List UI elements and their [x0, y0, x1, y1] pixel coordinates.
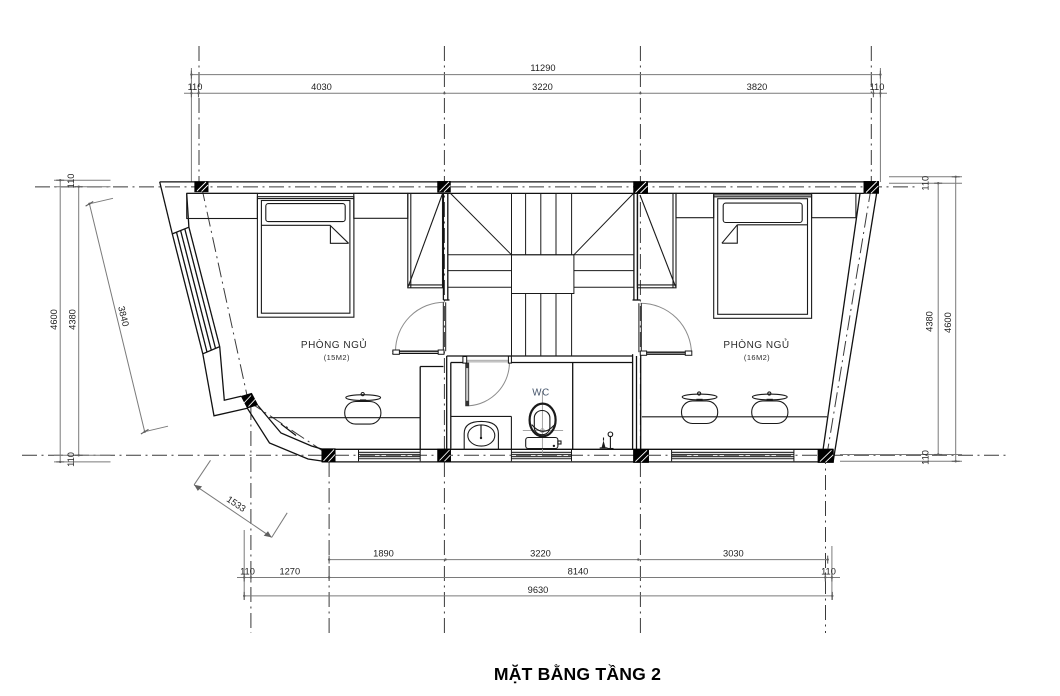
- svg-text:3030: 3030: [723, 549, 744, 559]
- svg-text:110: 110: [870, 82, 885, 92]
- svg-text:110: 110: [66, 174, 76, 189]
- svg-text:11290: 11290: [530, 63, 555, 73]
- svg-text:8140: 8140: [568, 567, 589, 577]
- svg-text:110: 110: [921, 450, 931, 465]
- svg-text:9630: 9630: [528, 585, 549, 595]
- svg-text:110: 110: [188, 82, 203, 92]
- svg-text:3820: 3820: [747, 82, 768, 92]
- svg-text:110: 110: [821, 567, 836, 577]
- svg-text:110: 110: [66, 452, 76, 467]
- svg-text:PHÒNG NGỦ: PHÒNG NGỦ: [301, 338, 367, 351]
- svg-text:4030: 4030: [311, 82, 332, 92]
- svg-text:4380: 4380: [67, 309, 77, 330]
- svg-text:(16M2): (16M2): [744, 353, 770, 362]
- svg-text:3220: 3220: [532, 82, 553, 92]
- svg-text:(15M2): (15M2): [324, 353, 350, 362]
- svg-text:3220: 3220: [530, 549, 551, 559]
- svg-text:110: 110: [921, 176, 931, 191]
- svg-text:1890: 1890: [373, 549, 394, 559]
- svg-text:4600: 4600: [49, 309, 59, 330]
- svg-text:1270: 1270: [279, 567, 300, 577]
- svg-text:110: 110: [240, 567, 255, 577]
- svg-text:4380: 4380: [924, 311, 934, 332]
- svg-text:MẶT BẰNG TẦNG 2: MẶT BẰNG TẦNG 2: [494, 663, 661, 684]
- svg-text:PHÒNG NGỦ: PHÒNG NGỦ: [723, 338, 789, 351]
- svg-text:WC: WC: [532, 388, 550, 399]
- svg-text:4600: 4600: [943, 312, 953, 333]
